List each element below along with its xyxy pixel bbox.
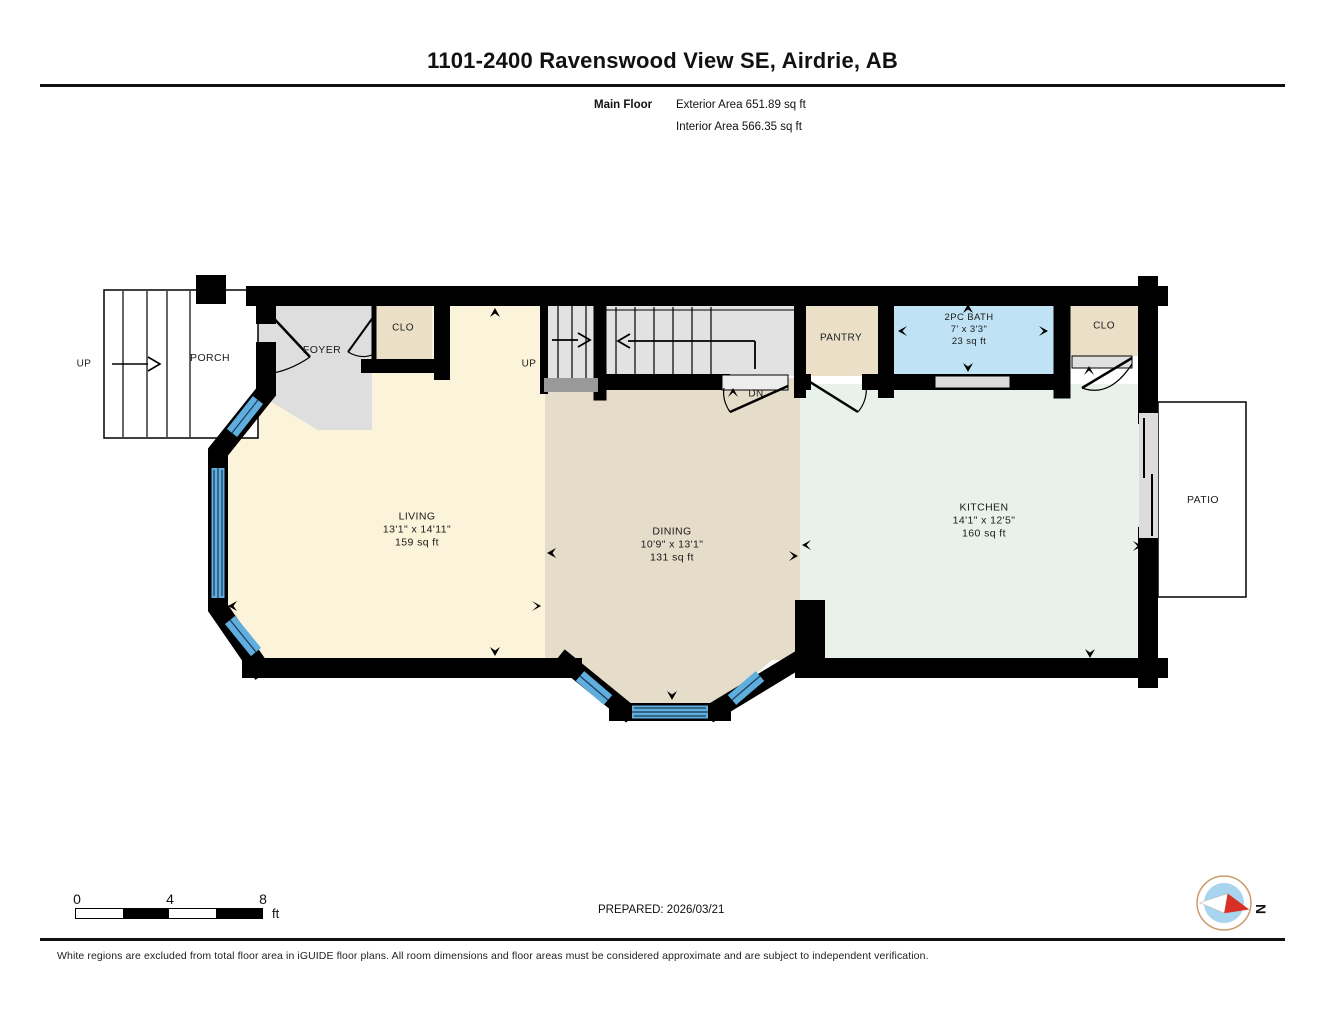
patio-outline	[1158, 402, 1246, 597]
bath-floor	[888, 302, 1060, 375]
scale-tick-0: 0	[73, 891, 81, 907]
scale-unit: ft	[272, 906, 279, 921]
disclaimer-text: White regions are excluded from total fl…	[57, 950, 929, 962]
floorplan-svg	[0, 0, 1325, 1024]
compass-icon: N	[1192, 868, 1278, 940]
floorplan-page: 1101-2400 Ravenswood View SE, Airdrie, A…	[0, 0, 1325, 1024]
prepared-date: PREPARED: 2026/03/21	[598, 904, 724, 916]
kitchen-floor	[800, 384, 1140, 660]
scale-bar	[75, 908, 263, 919]
pantry-floor	[802, 306, 882, 376]
scale-tick-8: 8	[259, 891, 267, 907]
scale-tick-4: 4	[166, 891, 174, 907]
closet-left-floor	[376, 306, 432, 360]
footer-divider	[40, 938, 1285, 941]
dining-floor	[545, 378, 800, 708]
room-fills	[214, 302, 1140, 708]
closet-right-floor	[1064, 302, 1138, 356]
compass-north-label: N	[1253, 904, 1269, 914]
stairs-up-landing	[544, 378, 598, 392]
bath-door-slab	[935, 376, 1010, 388]
stair-landing-edge	[722, 375, 788, 390]
patio-sliding-door	[1139, 413, 1158, 538]
